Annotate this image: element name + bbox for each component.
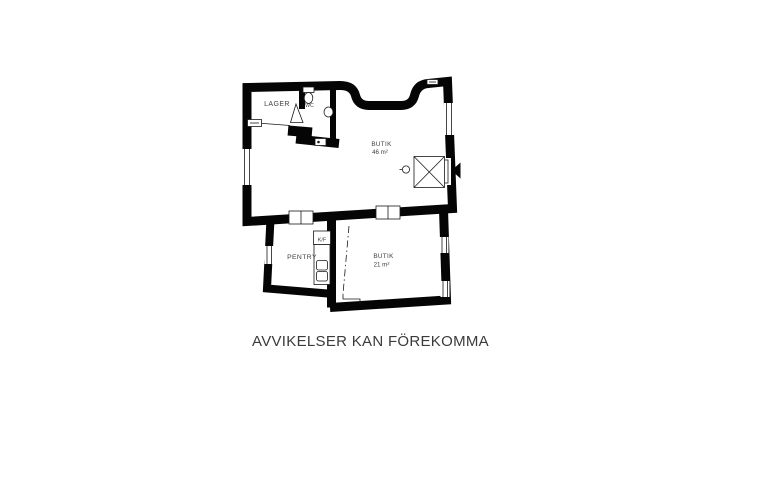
toilet-icon bbox=[303, 87, 314, 104]
room-label-butik-main-name: BUTIK bbox=[371, 141, 392, 148]
kitchen-sink-counter bbox=[314, 245, 330, 285]
window-butik-small-lower bbox=[441, 281, 450, 297]
floorplan-page: LAGER WC BUTIK 46 m² PENTRY K/F BUTIK 21… bbox=[0, 0, 768, 486]
window-butik-small-upper bbox=[440, 237, 449, 253]
room-label-butik-main: BUTIK 46 m² bbox=[371, 141, 392, 156]
window-right-main bbox=[444, 103, 454, 135]
room-label-butik-small-name: BUTIK bbox=[373, 253, 394, 260]
room-area-butik-main: 46 m² bbox=[372, 149, 388, 156]
vent-icon bbox=[315, 139, 326, 146]
window-pentry-left bbox=[265, 246, 274, 264]
wall-lager-stub bbox=[288, 131, 312, 133]
room-label-kf: K/F bbox=[318, 238, 327, 244]
floorplan-drawing: LAGER WC BUTIK 46 m² PENTRY K/F BUTIK 21… bbox=[0, 0, 768, 486]
circle-symbol bbox=[400, 166, 410, 173]
radiator-icon bbox=[248, 120, 262, 127]
dash-dot-boundary bbox=[343, 226, 360, 304]
windows bbox=[242, 103, 454, 297]
room-label-pentry: PENTRY bbox=[287, 254, 317, 261]
walls bbox=[247, 82, 453, 308]
disclaimer-text: AVVIKELSER KAN FÖREKOMMA bbox=[252, 333, 468, 350]
fixtures bbox=[248, 80, 461, 305]
window-left-main bbox=[242, 149, 252, 185]
room-label-wc: WC bbox=[305, 103, 314, 109]
wall-marker-icon bbox=[427, 80, 438, 85]
opening-main-to-butik-small bbox=[376, 206, 400, 219]
room-label-butik-small: BUTIK 21 m² bbox=[373, 253, 394, 269]
room-area-butik-small: 21 m² bbox=[374, 262, 390, 269]
room-label-lager: LAGER bbox=[264, 101, 290, 108]
sink-icon bbox=[324, 107, 333, 117]
entrance-mat-x-box bbox=[414, 157, 445, 188]
opening-main-to-pentry bbox=[289, 211, 313, 224]
